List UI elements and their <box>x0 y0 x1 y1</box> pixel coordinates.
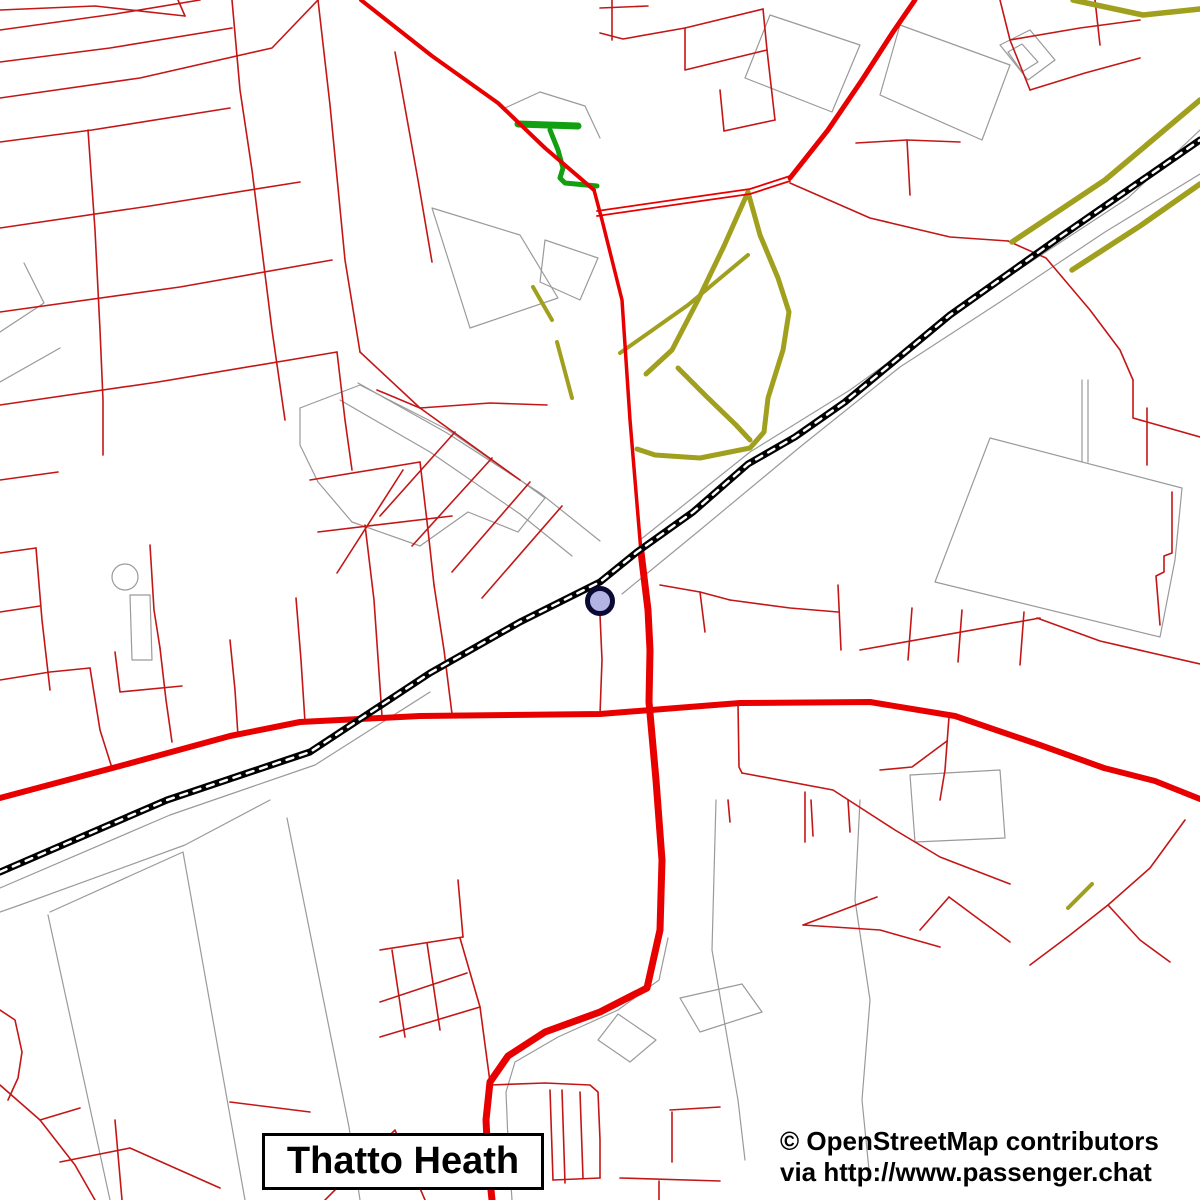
map-title: Thatto Heath <box>287 1140 519 1183</box>
map-canvas[interactable] <box>0 0 1200 1200</box>
map-title-box: Thatto Heath <box>262 1133 544 1190</box>
map-attribution: © OpenStreetMap contributors via http://… <box>780 1126 1198 1188</box>
station-marker[interactable] <box>588 589 613 614</box>
attribution-copyright: © OpenStreetMap contributors <box>780 1126 1198 1157</box>
attribution-url[interactable]: via http://www.passenger.chat <box>780 1157 1198 1188</box>
green-path <box>518 124 578 126</box>
map-viewport[interactable]: Thatto Heath © OpenStreetMap contributor… <box>0 0 1200 1200</box>
